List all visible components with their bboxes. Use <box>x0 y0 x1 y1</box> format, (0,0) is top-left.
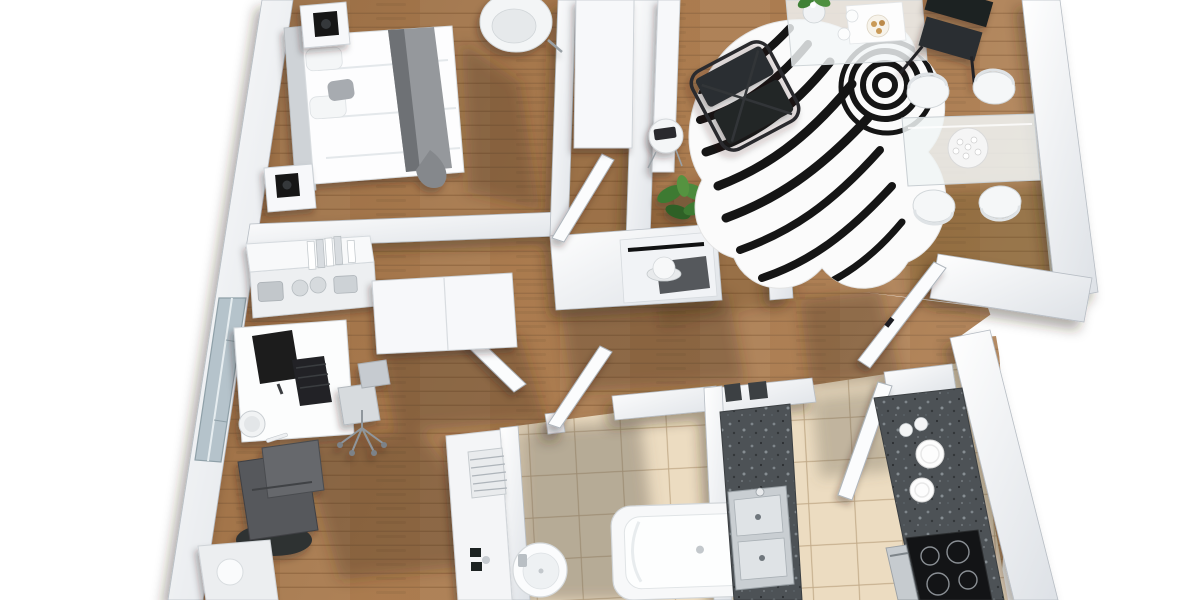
entry-door-detail <box>620 232 717 303</box>
cooktop <box>906 530 992 600</box>
double-sink <box>728 486 794 590</box>
coffee-table <box>786 0 927 66</box>
round-wall-basin <box>513 543 567 597</box>
floor-plan-canvas <box>0 0 1200 600</box>
glass-dining-table <box>902 114 1040 186</box>
cup <box>846 10 858 22</box>
basin-faucet <box>518 554 527 567</box>
floor-plan-render <box>0 0 1200 600</box>
desk <box>234 320 354 443</box>
low-cabinet <box>198 540 278 600</box>
cup <box>915 418 928 431</box>
faucet-knob <box>470 548 481 557</box>
basket <box>258 281 284 301</box>
cup <box>838 28 850 40</box>
jar <box>292 280 308 296</box>
pillow <box>305 47 342 71</box>
nightstand-top <box>300 2 350 48</box>
cup <box>900 424 913 437</box>
round-lamp <box>217 559 243 585</box>
counter-left <box>720 404 802 600</box>
plate <box>910 478 934 502</box>
hall-cabinet <box>574 0 634 148</box>
sink-faucet <box>756 488 764 496</box>
accent-pillow <box>327 78 356 101</box>
basket <box>334 275 358 293</box>
jar <box>310 277 326 293</box>
towel-radiator <box>468 448 507 498</box>
utility-counter <box>446 430 512 600</box>
coral-centerpiece <box>948 128 988 168</box>
wall-shelf <box>246 235 377 318</box>
nightstand-bottom <box>264 164 316 212</box>
plate <box>916 440 944 468</box>
monitor <box>252 330 300 384</box>
faucet-knob <box>471 562 482 571</box>
